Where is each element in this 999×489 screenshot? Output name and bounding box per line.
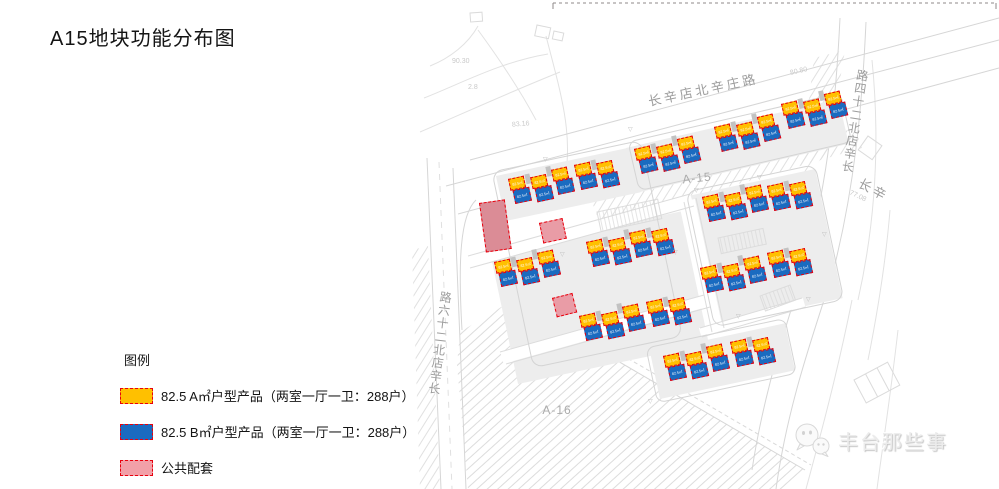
unit-area-label: 82.5㎡ <box>525 273 536 280</box>
unit-area-label: 82.5㎡ <box>610 327 621 334</box>
legend-item-label: 82.5 B㎡户型产品（两室一厅一卫：288户） <box>161 422 415 441</box>
unit-area-label: 82.5㎡ <box>766 130 777 137</box>
unit-area-label: 82.5㎡ <box>605 315 616 322</box>
unit-area-label: 82.5㎡ <box>711 210 722 217</box>
legend-swatch <box>120 460 153 476</box>
unit-area-label: 82.5㎡ <box>517 192 528 199</box>
unit-area-label: 82.5㎡ <box>694 367 705 374</box>
unit-area-label: 82.5㎡ <box>649 303 660 310</box>
unit-area-label: 82.5㎡ <box>554 170 565 177</box>
unit-area-label: 82.5㎡ <box>726 267 737 274</box>
unit-area-label: 82.5㎡ <box>776 199 787 206</box>
survey-mark-icon: ▽ <box>628 126 633 133</box>
unit-area-label: 82.5㎡ <box>746 259 757 266</box>
road-label-char: 长 <box>841 160 855 175</box>
unit-area-label: 82.5㎡ <box>793 185 804 192</box>
unit-area-label: 82.5㎡ <box>582 317 593 324</box>
unit-area-label: 82.5㎡ <box>756 341 767 348</box>
legend-items: 82.5 A㎡户型产品（两室一厅一卫：288户）82.5 B㎡户型产品（两室一厅… <box>120 386 415 477</box>
unit-area-label: 82.5㎡ <box>637 149 648 156</box>
unit-area-label: 82.5㎡ <box>632 233 643 240</box>
unit-area-label: 82.5㎡ <box>631 320 642 327</box>
unit-area-label: 82.5㎡ <box>612 241 623 248</box>
unit-area-label: 82.5㎡ <box>534 178 545 185</box>
unit-area-label: 82.5㎡ <box>546 266 557 273</box>
unit-area-label: 82.5㎡ <box>705 198 716 205</box>
unit-area-label: 82.5㎡ <box>760 117 771 124</box>
legend-swatch <box>120 424 153 440</box>
unit-area-label: 82.5㎡ <box>723 140 734 147</box>
unit-area-label: 82.5㎡ <box>660 147 671 154</box>
survey-mark-icon: ▽ <box>694 187 699 194</box>
survey-mark-icon: ▽ <box>822 231 827 238</box>
legend-item: 82.5 B㎡户型产品（两室一厅一卫：288户） <box>120 422 415 441</box>
unit-area-label: 82.5㎡ <box>665 159 676 166</box>
unit-area-label: 82.5㎡ <box>709 281 720 288</box>
survey-elevation-number: 2.8 <box>468 84 478 91</box>
unit-area-label: 82.5㎡ <box>740 125 751 132</box>
unit-area-label: 82.5㎡ <box>752 272 763 279</box>
unit-area-label: 82.5㎡ <box>770 187 781 194</box>
unit-area-label: 82.5㎡ <box>583 178 594 185</box>
survey-elevation-number: 90.30 <box>452 58 470 65</box>
unit-area-label: 82.5㎡ <box>833 107 844 114</box>
unit-area-label: 82.5㎡ <box>672 301 683 308</box>
unit-area-label: 82.5㎡ <box>655 232 666 239</box>
unit-area-label: 82.5㎡ <box>731 279 742 286</box>
legend-item-label: 公共配套 <box>161 458 213 477</box>
unit-area-label: 82.5㎡ <box>560 183 571 190</box>
unit-area-label: 82.5㎡ <box>703 269 714 276</box>
wechat-icon <box>791 419 833 461</box>
survey-mark-icon: ▽ <box>806 296 811 303</box>
unit-area-label: 82.5㎡ <box>733 208 744 215</box>
legend-item: 82.5 A㎡户型产品（两室一厅一卫：288户） <box>120 386 415 405</box>
watermark-text: 丰台那些事 <box>838 426 948 455</box>
unit-area-label: 82.5㎡ <box>638 246 649 253</box>
unit-area-label: 82.5㎡ <box>600 164 611 171</box>
legend-heading: 图例 <box>124 350 415 369</box>
unit-area-label: 82.5㎡ <box>511 180 522 187</box>
unit-area-label: 82.5㎡ <box>595 255 606 262</box>
legend-item-label: 82.5 A㎡户型产品（两室一厅一卫：288户） <box>161 386 415 405</box>
survey-mark-icon: ▽ <box>736 313 741 320</box>
survey-mark-icon: ▽ <box>757 174 762 181</box>
survey-mark-icon: ▽ <box>673 249 678 256</box>
unit-area-label: 82.5㎡ <box>717 127 728 134</box>
unit-area-label: 82.5㎡ <box>680 139 691 146</box>
watermark: 丰台那些事 <box>791 419 948 461</box>
legend: 图例 82.5 A㎡户型产品（两室一厅一卫：288户）82.5 B㎡户型产品（两… <box>120 350 415 477</box>
unit-area-label: 82.5㎡ <box>625 307 636 314</box>
unit-area-label: 82.5㎡ <box>497 263 508 270</box>
unit-area-label: 82.5㎡ <box>784 104 795 111</box>
legend-item: 公共配套 <box>120 458 415 477</box>
unit-area-label: 82.5㎡ <box>577 166 588 173</box>
legend-swatch <box>120 388 153 404</box>
unit-area-label: 82.5㎡ <box>715 360 726 367</box>
unit-area-label: 82.5㎡ <box>761 353 772 360</box>
unit-area-label: 82.5㎡ <box>745 137 756 144</box>
unit-area-label: 82.5㎡ <box>728 196 739 203</box>
unit-area-label: 82.5㎡ <box>754 201 765 208</box>
unit-area-label: 82.5㎡ <box>776 266 787 273</box>
unit-area-label: 82.5㎡ <box>733 343 744 350</box>
unit-area-label: 82.5㎡ <box>748 188 759 195</box>
unit-area-label: 82.5㎡ <box>605 176 616 183</box>
unit-area-label: 82.5㎡ <box>672 369 683 376</box>
unit-area-label: 82.5㎡ <box>739 355 750 362</box>
unit-area-label: 82.5㎡ <box>655 315 666 322</box>
survey-mark-icon: ▽ <box>560 251 565 258</box>
road-label-char: 长 <box>428 383 442 398</box>
unit-area-label: 82.5㎡ <box>540 253 551 260</box>
unit-area-label: 82.5㎡ <box>827 94 838 101</box>
unit-area-label: 82.5㎡ <box>666 357 677 364</box>
unit-area-label: 82.5㎡ <box>793 252 804 259</box>
survey-mark-icon: ▽ <box>543 156 548 163</box>
unit-area-label: 82.5㎡ <box>643 162 654 169</box>
unit-area-label: 82.5㎡ <box>520 261 531 268</box>
unit-area-label: 82.5㎡ <box>588 329 599 336</box>
unit-area-label: 82.5㎡ <box>503 275 514 282</box>
unit-area-label: 82.5㎡ <box>790 117 801 124</box>
parcel-label: A-16 <box>542 403 571 417</box>
unit-area-label: 82.5㎡ <box>589 243 600 250</box>
unit-area-label: 82.5㎡ <box>689 355 700 362</box>
unit-area-label: 82.5㎡ <box>617 253 628 260</box>
unit-area-label: 82.5㎡ <box>660 244 671 251</box>
unit-area-label: 82.5㎡ <box>807 102 818 109</box>
unit-area-label: 82.5㎡ <box>686 152 697 159</box>
unit-area-label: 82.5㎡ <box>770 254 781 261</box>
unit-area-label: 82.5㎡ <box>539 190 550 197</box>
unit-area-label: 82.5㎡ <box>812 114 823 121</box>
survey-mark-icon: ▽ <box>648 398 653 405</box>
unit-area-label: 82.5㎡ <box>798 264 809 271</box>
unit-area-label: 82.5㎡ <box>709 347 720 354</box>
unit-area-label: 82.5㎡ <box>798 197 809 204</box>
unit-area-label: 82.5㎡ <box>677 313 688 320</box>
slide: A15地块功能分布图 <box>0 0 999 489</box>
